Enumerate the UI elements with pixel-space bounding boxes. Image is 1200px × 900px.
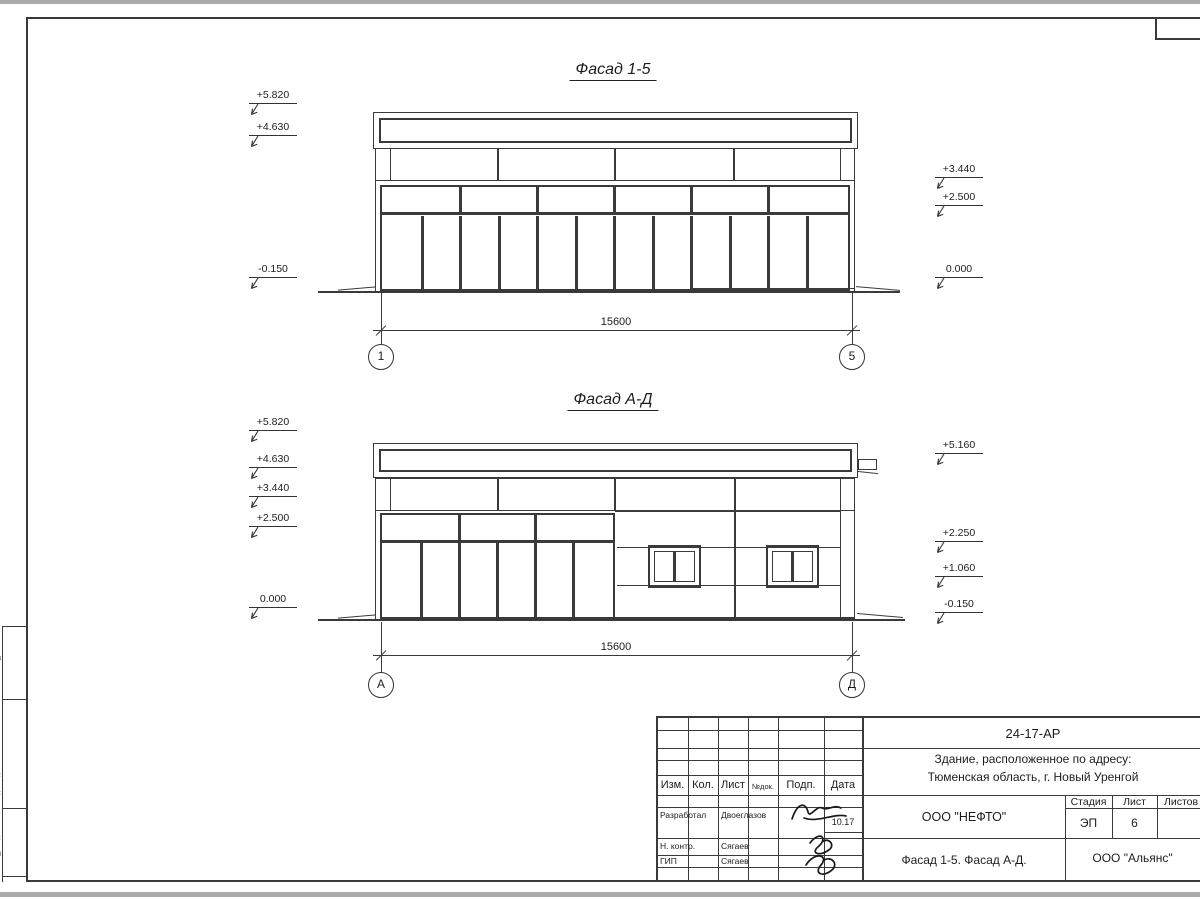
tb-sheet-number: 6 [1112, 816, 1157, 830]
tb-role: Н. контр. [660, 841, 717, 851]
tb-sheet-header: Лист [1112, 796, 1157, 808]
elevation-mark: +2.500 [249, 512, 297, 540]
tb-doc-title: Фасад 1-5. Фасад А-Д. [863, 853, 1065, 867]
elevation-mark: +5.820 [249, 416, 297, 444]
axis-bubble: А [368, 672, 394, 698]
tb-name: Сягаев [721, 841, 777, 851]
tb-name: Сягаев [721, 856, 777, 866]
tb-header-ndok: №док. [748, 782, 778, 791]
tb-stage-header: Стадия [1065, 796, 1112, 808]
tb-header-izm: Изм. [657, 779, 688, 791]
drawing-sheet: Взам. инв. № Подп. и дата Инв. № подл. Ф… [0, 0, 1200, 900]
signature-scribbles [778, 793, 868, 883]
facade-1-5-title: Фасад 1-5 [570, 61, 657, 81]
tb-header-podp: Подп. [778, 779, 824, 791]
tb-role: Разработал [660, 810, 717, 820]
tb-address-line1: Здание, расположенное по адресу: [863, 752, 1200, 766]
elevation-mark: -0.150 [249, 263, 297, 291]
dimension-label: 15600 [601, 316, 632, 328]
elevation-mark: +1.060 [935, 562, 983, 590]
tb-firm: ООО "Альянс" [1065, 851, 1200, 865]
elevation-mark: +3.440 [249, 482, 297, 510]
tb-company: ООО "НЕФТО" [863, 810, 1065, 824]
facade-a-d-title: Фасад А-Д [567, 391, 658, 411]
side-stamp-label: Подп. и дата [0, 703, 1, 803]
elevation-mark: 0.000 [249, 593, 297, 621]
sheet-edge-top [0, 0, 1200, 4]
tb-stage-value: ЭП [1065, 816, 1112, 830]
side-stamp-label: Взам. инв. № [0, 630, 1, 696]
tb-project-code: 24-17-АР [863, 726, 1200, 741]
elevation-mark: +2.500 [935, 191, 983, 219]
axis-bubble: 1 [368, 344, 394, 370]
elevation-mark: +4.630 [249, 453, 297, 481]
elevation-mark: +3.440 [935, 163, 983, 191]
tb-header-list: Лист [718, 779, 748, 791]
elevation-mark: +5.160 [935, 439, 983, 467]
dimension-label: 15600 [601, 641, 632, 653]
tb-address-line2: Тюменская область, г. Новый Уренгой [863, 770, 1200, 784]
tb-name: Двоеглазов [721, 810, 777, 820]
tb-sheets-header: Листов [1157, 796, 1200, 808]
frame-corner-box [1155, 17, 1200, 40]
tb-header-kol: Кол. [688, 779, 718, 791]
axis-bubble: 5 [839, 344, 865, 370]
axis-bubble: Д [839, 672, 865, 698]
elevation-mark: +5.820 [249, 89, 297, 117]
elevation-mark: +2.250 [935, 527, 983, 555]
sheet-edge-bottom [0, 892, 1200, 897]
elevation-mark: +4.630 [249, 121, 297, 149]
side-stamp-label: Инв. № подл. [0, 812, 1, 872]
elevation-mark: -0.150 [935, 598, 983, 626]
tb-header-data: Дата [824, 779, 862, 791]
elevation-mark: 0.000 [935, 263, 983, 291]
tb-role: ГИП [660, 856, 717, 866]
